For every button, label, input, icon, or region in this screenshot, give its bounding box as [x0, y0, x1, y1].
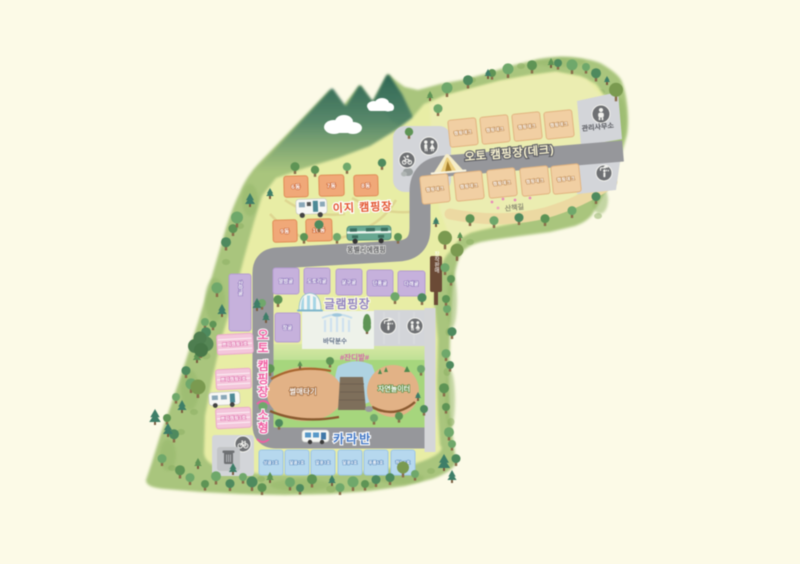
svg-text:알밤골: 알밤골: [279, 278, 294, 285]
svg-text:살구골: 살구골: [342, 279, 357, 286]
svg-text:7동: 7동: [327, 182, 337, 190]
svg-text:장작판매: 장작판매: [433, 251, 440, 275]
svg-text:산막골: 산막골: [237, 280, 243, 297]
svg-text:썰매타기: 썰매타기: [289, 386, 317, 396]
svg-text:카라반: 카라반: [333, 431, 372, 446]
svg-text:토: 토: [257, 341, 268, 355]
svg-text:8동: 8동: [361, 182, 371, 190]
svg-text:핑: 핑: [257, 371, 268, 386]
svg-text:몽벨리에캠핑: 몽벨리에캠핑: [347, 245, 386, 254]
svg-text:자연놀이터: 자연놀이터: [378, 384, 410, 393]
svg-text:형: 형: [257, 420, 268, 435]
svg-text:캠: 캠: [257, 358, 268, 373]
svg-text:상큼1호: 상큼1호: [263, 459, 278, 466]
svg-text:오: 오: [257, 328, 268, 342]
svg-text:알콩3호: 알콩3호: [315, 459, 330, 466]
svg-text:도토리골: 도토리골: [307, 278, 327, 285]
svg-text:단풍골: 단풍골: [373, 280, 388, 287]
svg-text:바닥분수: 바닥분수: [323, 336, 347, 345]
svg-text:달콩4호: 달콩4호: [342, 459, 357, 466]
svg-text:달콤2호: 달콤2호: [289, 459, 304, 466]
svg-text:다래골: 다래골: [404, 280, 419, 287]
svg-text:글램핑장: 글램핑장: [324, 296, 370, 311]
svg-text:9동: 9동: [280, 227, 290, 235]
svg-text:6동: 6동: [291, 183, 301, 191]
svg-text:장: 장: [257, 385, 268, 399]
svg-text:#잔디밭#: #잔디밭#: [340, 352, 370, 362]
svg-text:푸름5호: 푸름5호: [368, 459, 383, 466]
svg-text:소: 소: [257, 408, 268, 422]
svg-text:장골: 장골: [283, 324, 293, 331]
